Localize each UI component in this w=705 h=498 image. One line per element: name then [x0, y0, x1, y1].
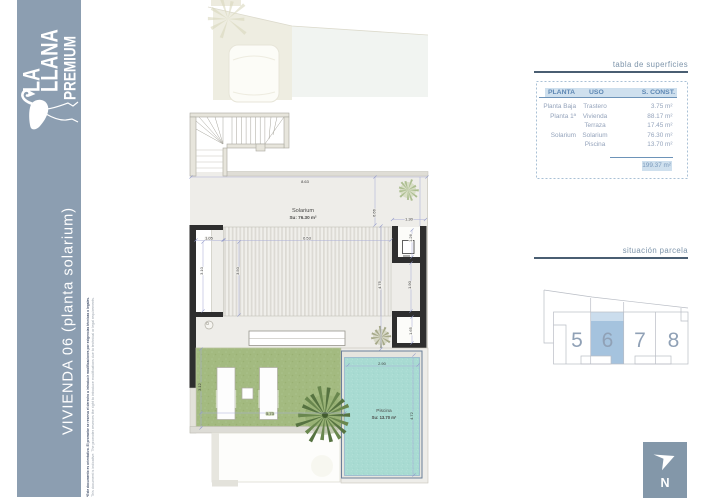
svg-text:3.50: 3.50: [235, 266, 240, 275]
svg-text:6.53: 6.53: [303, 235, 312, 240]
svg-text:8.63: 8.63: [301, 179, 310, 184]
svg-text:Piscina: Piscina: [376, 408, 392, 414]
svg-text:4.75: 4.75: [377, 280, 382, 289]
svg-text:1.30: 1.30: [405, 217, 414, 222]
svg-text:3.12: 3.12: [197, 382, 202, 391]
svg-text:5.73: 5.73: [266, 411, 275, 416]
svg-text:Solarium: Solarium: [292, 208, 314, 214]
svg-text:*Este documento es orientativo: *Este documento es orientativo. El promo…: [86, 297, 90, 497]
svg-text:8: 8: [668, 329, 680, 352]
svg-text:5: 5: [571, 329, 583, 352]
svg-text:PREMIUM: PREMIUM: [61, 36, 80, 100]
svg-text:1.05: 1.05: [205, 235, 214, 240]
svg-text:4.72: 4.72: [409, 411, 414, 420]
svg-text:2.90: 2.90: [378, 361, 387, 366]
svg-text:6.66: 6.66: [372, 208, 377, 217]
svg-text:1.65: 1.65: [408, 326, 413, 335]
svg-text:1.90: 1.90: [407, 280, 412, 289]
svg-text:6: 6: [602, 329, 614, 352]
svg-text:Su: 76.30 m²: Su: 76.30 m²: [289, 215, 317, 220]
svg-text:1.26: 1.26: [408, 233, 413, 242]
svg-text:VIVIENDA 06 (planta solarium): VIVIENDA 06 (planta solarium): [61, 207, 77, 435]
svg-text:This document is indicative. T: This document is indicative. The promote…: [91, 297, 95, 497]
svg-text:3.10: 3.10: [199, 266, 204, 275]
svg-text:N: N: [660, 476, 669, 490]
svg-text:Su: 13.70 m²: Su: 13.70 m²: [372, 415, 397, 420]
svg-text:7: 7: [634, 329, 646, 352]
